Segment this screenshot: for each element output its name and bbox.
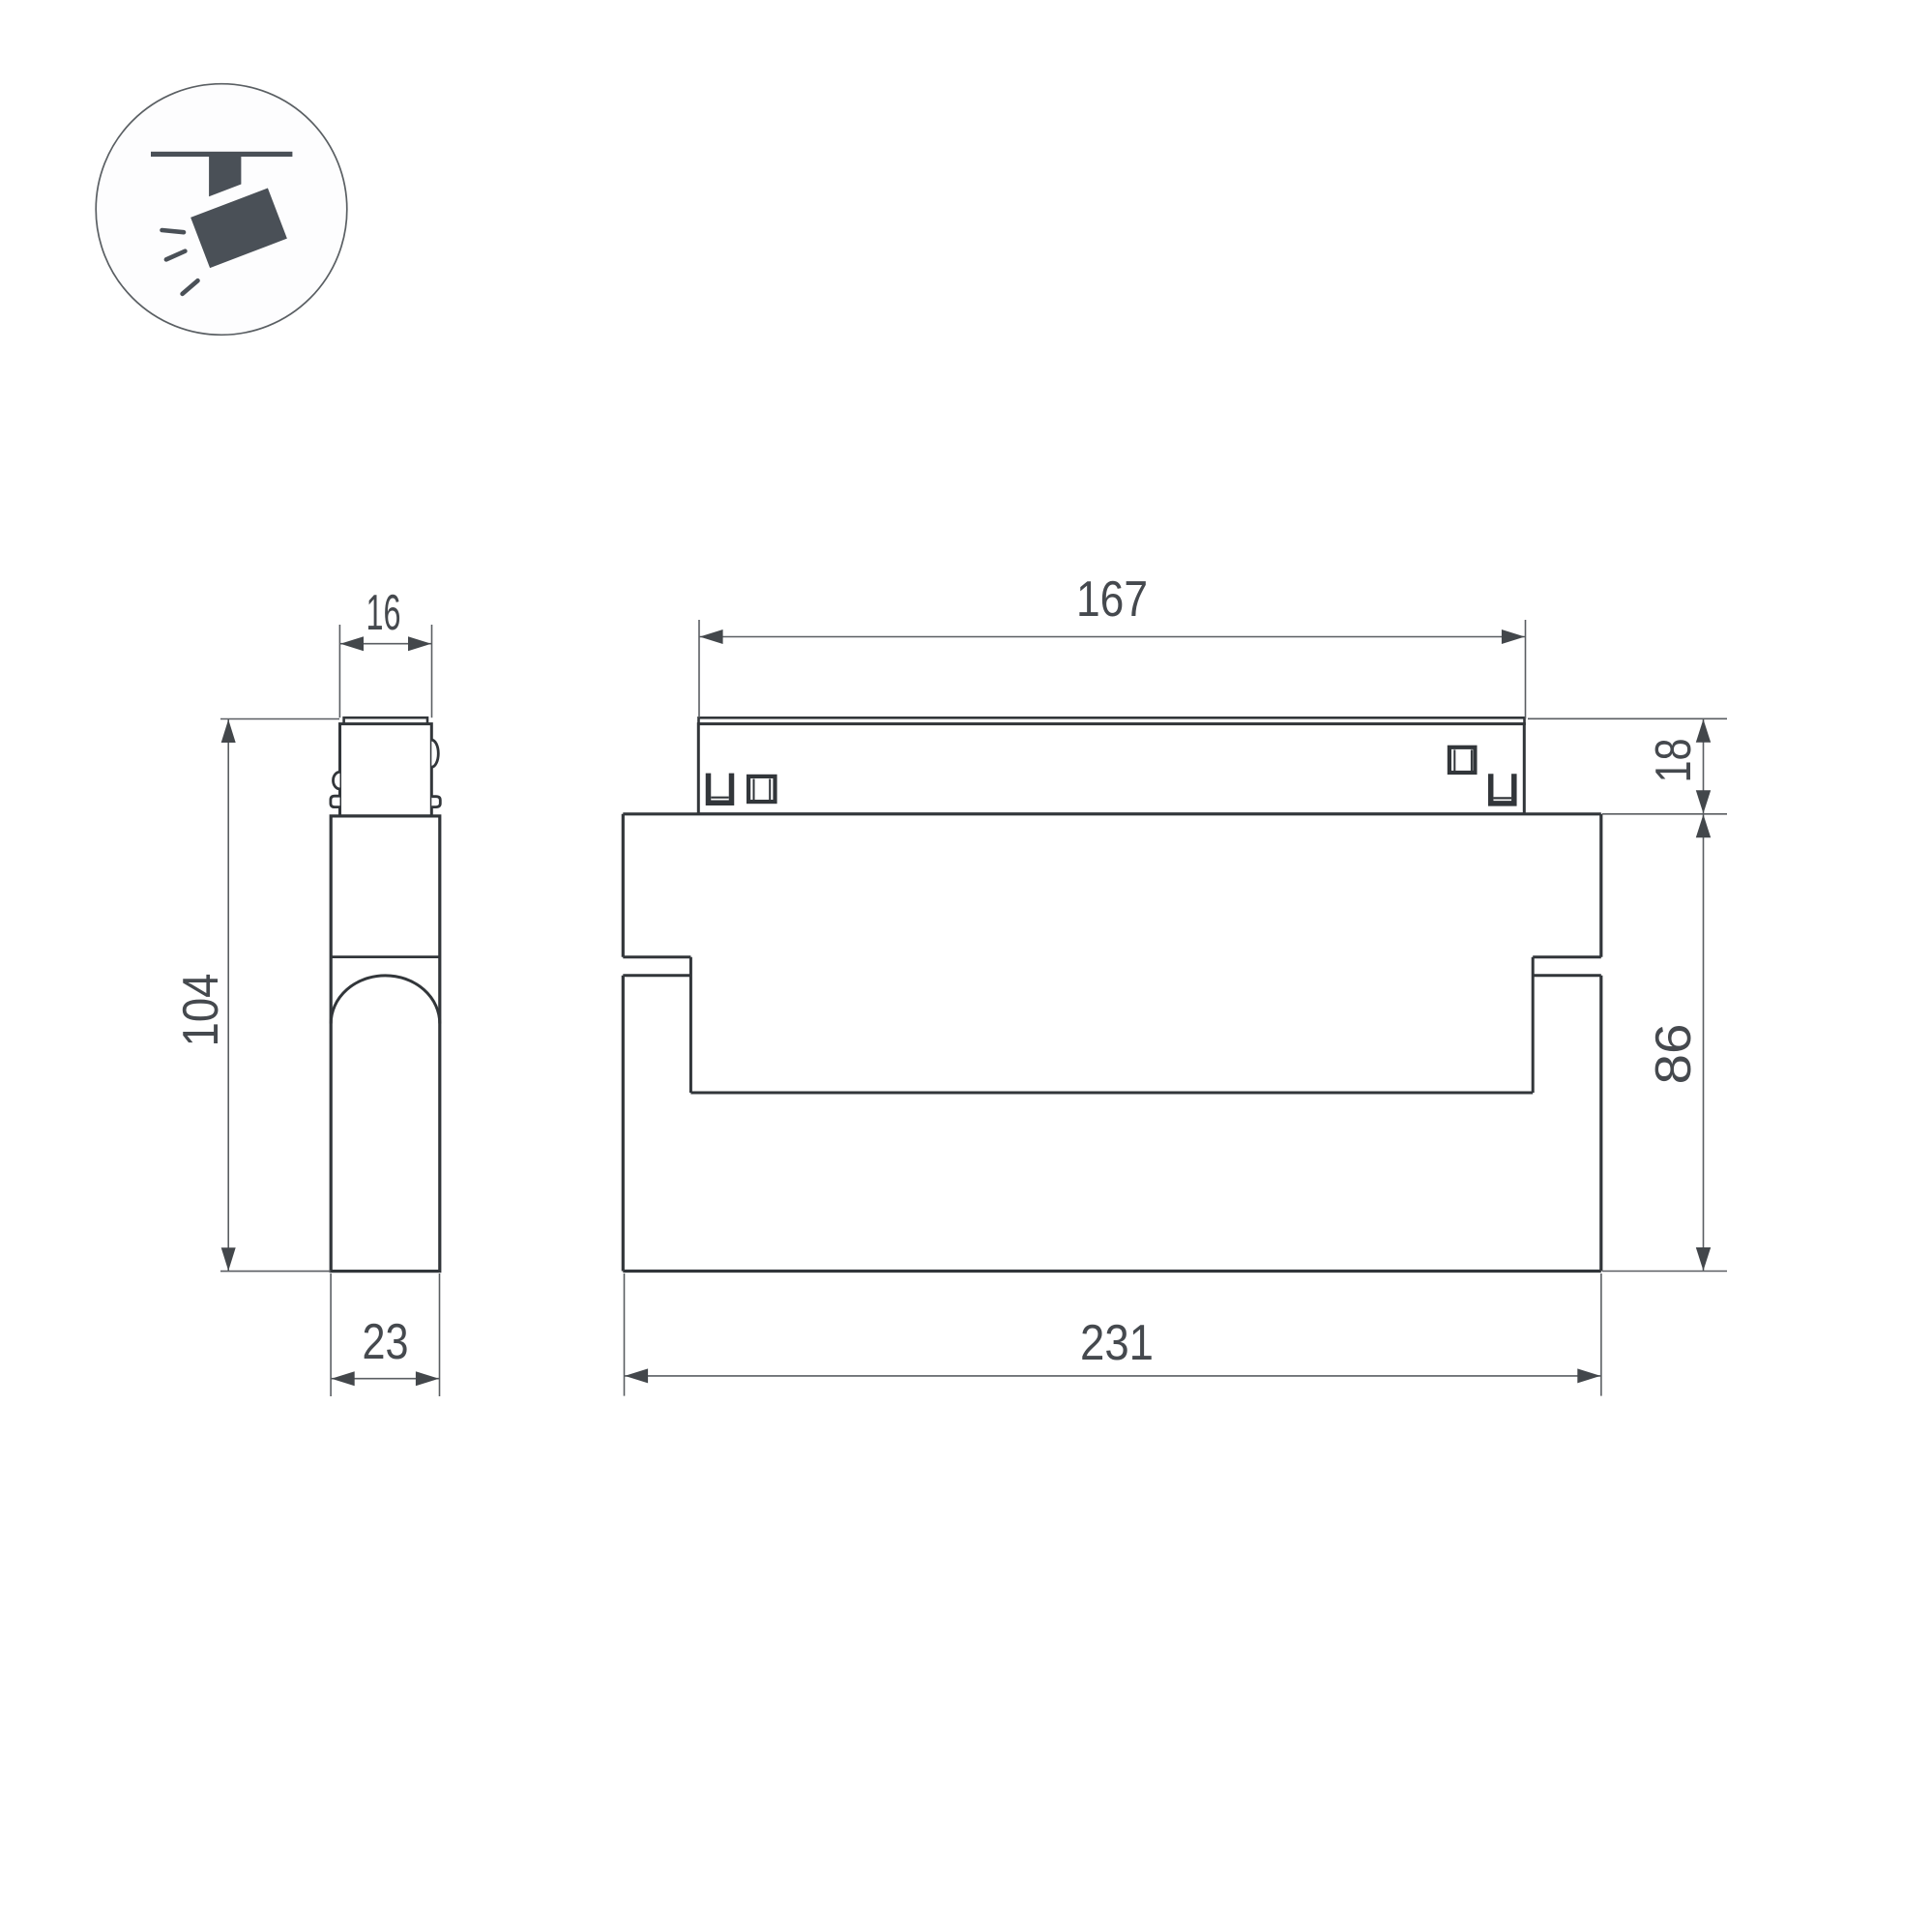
- svg-text:16: 16: [366, 585, 401, 641]
- svg-text:104: 104: [173, 974, 229, 1047]
- svg-text:167: 167: [1076, 571, 1148, 628]
- svg-text:231: 231: [1080, 1315, 1154, 1371]
- svg-text:23: 23: [363, 1314, 409, 1370]
- svg-text:18: 18: [1646, 739, 1702, 783]
- svg-text:86: 86: [1646, 1024, 1702, 1085]
